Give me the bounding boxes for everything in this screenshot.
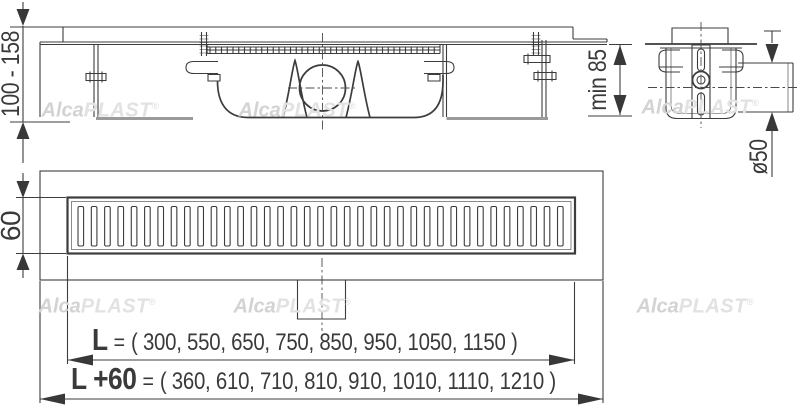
brand-watermark: AlcaPLAST® <box>212 94 382 118</box>
length-label: L <box>92 322 108 358</box>
length-equals: = <box>114 329 125 356</box>
brand-watermark: AlcaPLAST® <box>12 290 182 314</box>
length-plus60-equals: = <box>142 368 153 395</box>
dim-outlet-diameter-label: ø50 <box>746 115 772 200</box>
technical-drawing: AlcaPLAST® AlcaPLAST® AlcaPLAST® AlcaPLA… <box>0 0 800 410</box>
dim-grate-width-label: 60 <box>0 186 24 266</box>
grate-slots <box>78 207 563 247</box>
grate-outline <box>68 198 576 254</box>
channel-body-outline <box>40 171 603 280</box>
dim-min-depth-label: min 85 <box>585 20 611 139</box>
dim-length-plus60-row: L +60 = ( 360, 610, 710, 810, 910, 1010,… <box>71 361 556 397</box>
brand-watermark: AlcaPLAST® <box>207 290 377 314</box>
brand-watermark: AlcaPLAST® <box>15 94 185 118</box>
brand-watermark: AlcaPLAST® <box>610 290 780 314</box>
length-values: ( 300, 550, 650, 750, 850, 950, 1050, 11… <box>131 329 518 357</box>
dim-length-row: L = ( 300, 550, 650, 750, 850, 950, 1050… <box>92 322 518 358</box>
brand-watermark: AlcaPLAST® <box>615 91 785 115</box>
dim-install-height-label: 100 - 158 <box>0 14 24 133</box>
length-plus60-values: ( 360, 610, 710, 810, 910, 1010, 1110, 1… <box>160 368 556 396</box>
length-plus60-label: L +60 <box>71 361 137 397</box>
